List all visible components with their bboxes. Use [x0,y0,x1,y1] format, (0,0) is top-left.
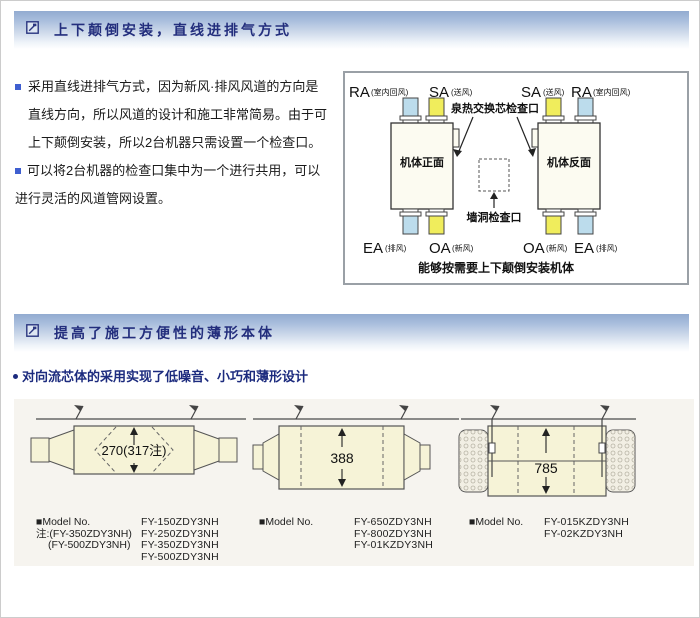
boxed-arrow-icon [26,21,39,34]
duct-label: EA [363,240,383,257]
duct-cone [194,430,219,470]
model-note: (FY-500ZDY3NH) [36,540,140,552]
section1-header-band: 上下颠倒安装，直线进排气方式 [14,11,689,49]
brochure-page: 上下颠倒安装，直线进排气方式 采用直线进排气方式，因为新风·排风风道的方向是直线… [0,0,700,618]
diagram-caption: 能够按需要上下颠倒安装机体 [418,260,575,275]
duct-label: OA [523,240,545,257]
bullet-item: 采用直线进排气方式，因为新风·排风风道的方向是直线方向，所以风道的设计和施工非常… [15,73,327,157]
model-no-label: ■Model No. [259,517,353,529]
model-number: FY-015KZDY3NH [544,517,629,529]
duct-label-sub: (新风) [546,243,568,253]
duct-label: OA [429,240,451,257]
bullet-square-icon [15,84,21,90]
model-number: FY-01KZDY3NH [354,540,433,552]
installation-diagram: RA (室内回风) SA (送风) SA (送风) RA (室内回风) [343,71,689,285]
duct-label-sub: (室内回风) [593,87,631,97]
duct-collar [253,445,263,469]
duct-label: RA [349,84,370,101]
insulated-end-texture [459,430,488,492]
model-block: ■Model No. FY-015KZDY3NH FY-02KZDY3NH [469,517,629,547]
model-number: FY-150ZDY3NH [141,517,219,529]
model-number: FY-350ZDY3NH [141,540,219,552]
model-number: FY-02KZDY3NH [544,529,629,541]
dimension-label: 388 [330,450,354,466]
boxed-arrow-icon [26,324,39,337]
duct-label-sub: (新风) [452,243,474,253]
duct-label: SA [521,84,541,101]
section2-header-band: 提高了施工方便性的薄形本体 [14,314,689,352]
model-number: FY-500ZDY3NH [141,552,219,564]
core-access-tab [453,129,459,147]
duct-cone [49,430,74,470]
round-bullet-icon [13,374,18,379]
model-number: FY-650ZDY3NH [354,517,433,529]
wall-inspection-label: 墙洞检查口 [467,210,522,224]
thin-body-diagram-large: 785 [456,401,641,519]
feature-text: 对向流芯体的采用实现了低噪音、小巧和薄形设计 [22,369,308,384]
duct-label-sub: (送风) [543,87,565,97]
section1-text: 采用直线进排气方式，因为新风·排风风道的方向是直线方向，所以风道的设计和施工非常… [15,73,327,213]
duct-collar [219,438,237,462]
feature-line: 对向流芯体的采用实现了低噪音、小巧和薄形设计 [13,366,308,385]
dimension-label: 270(317注) [101,443,166,458]
dimension-label: 785 [534,460,558,476]
hanger-marks [490,405,609,419]
thin-body-diagram-small: 270(317注) [23,401,247,519]
duct-label-sub: (室内回风) [371,87,409,97]
duct-cone [404,434,420,480]
hanger-marks [294,405,408,419]
duct-collar [31,438,49,462]
bullet-text: 可以将2台机器的检查口集中为一个进行共用，可以进行灵活的风道管网设置。 [15,163,320,206]
bullet-text: 采用直线进排气方式，因为新风·排风风道的方向是直线方向，所以风道的设计和施工非常… [28,79,327,150]
core-inspection-label: 泉热交换芯检查口 [450,101,539,115]
duct-label-sub: (排风) [385,243,407,253]
section2-title: 提高了施工方便性的薄形本体 [54,323,275,343]
duct-label-sub: (排风) [596,243,618,253]
insulated-end-texture [606,430,635,492]
core-access-tab [532,129,538,147]
duct-collar [420,445,430,469]
unit-back-label: 机体反面 [547,155,591,169]
model-no-label: ■Model No. [36,517,140,529]
duct-label-sub: (送风) [451,87,473,97]
section1-title: 上下颠倒安装，直线进排气方式 [54,20,292,40]
unit-front-label: 机体正面 [400,155,444,169]
duct-cone [263,434,279,480]
bullet-square-icon [15,168,21,174]
duct-label: EA [574,240,594,257]
bullet-item: 可以将2台机器的检查口集中为一个进行共用，可以进行灵活的风道管网设置。 [15,157,327,213]
hanger-marks [74,405,198,419]
model-no-label: ■Model No. [469,517,543,529]
model-block: ■Model No. 注:(FY-350ZDY3NH) (FY-500ZDY3N… [36,517,256,565]
thin-body-diagram-medium: 388 [251,401,461,519]
model-block: ■Model No. FY-650ZDY3NH FY-800ZDY3NH FY-… [259,517,434,557]
